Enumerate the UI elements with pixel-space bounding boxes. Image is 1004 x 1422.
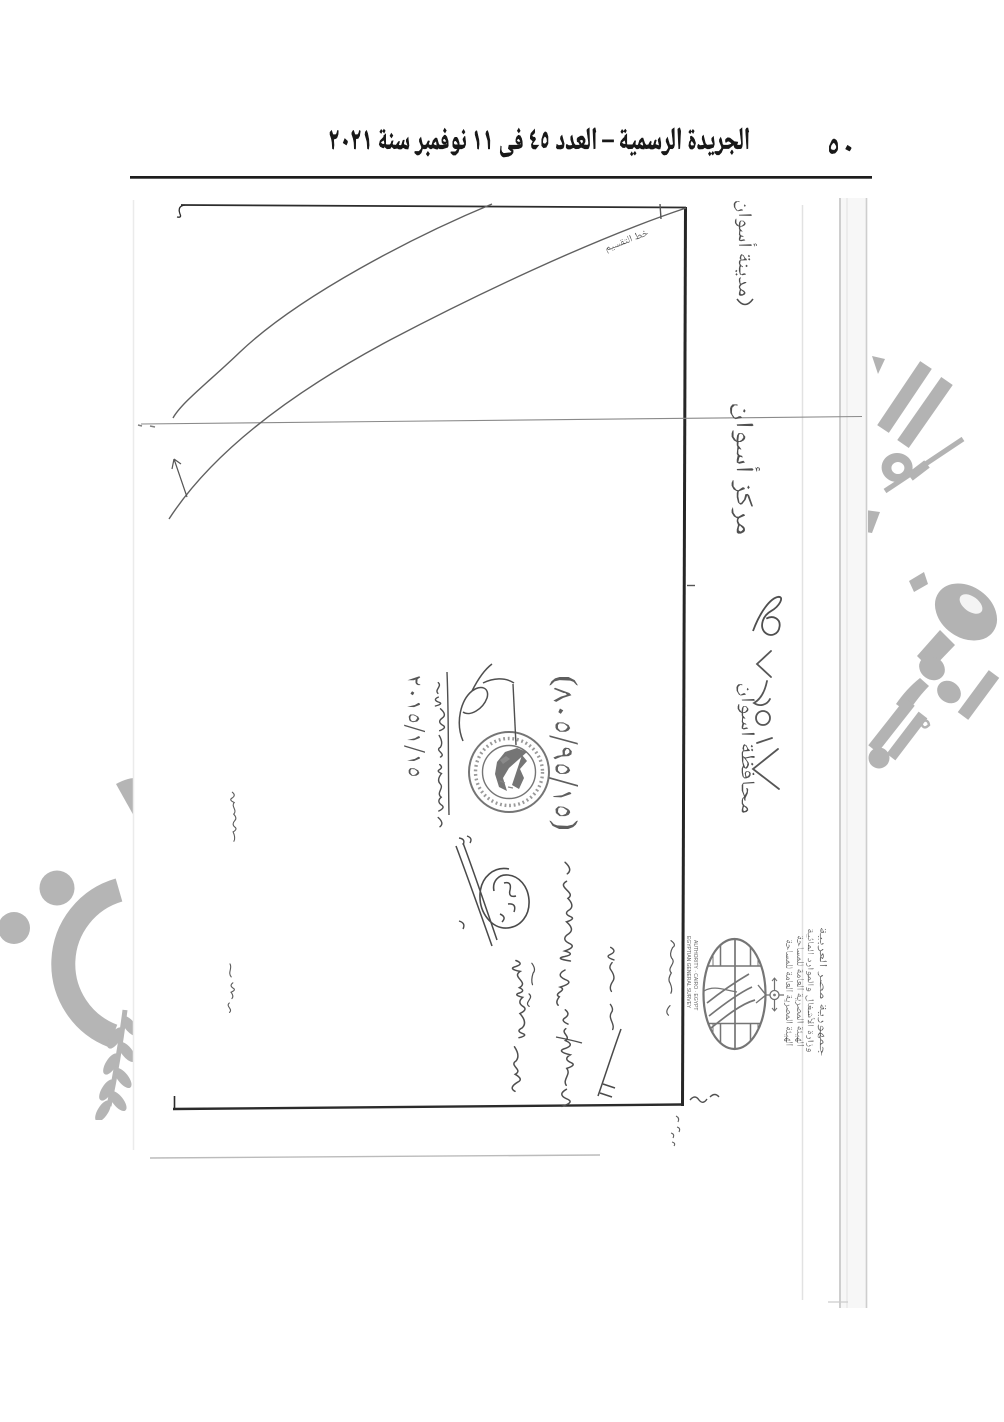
svg-text:AUTHORITY · CAIRO · EGYPT: AUTHORITY · CAIRO · EGYPT <box>692 940 698 1010</box>
svg-text:EGYPTIAN GENERAL SURVEY: EGYPTIAN GENERAL SURVEY <box>685 936 691 1009</box>
